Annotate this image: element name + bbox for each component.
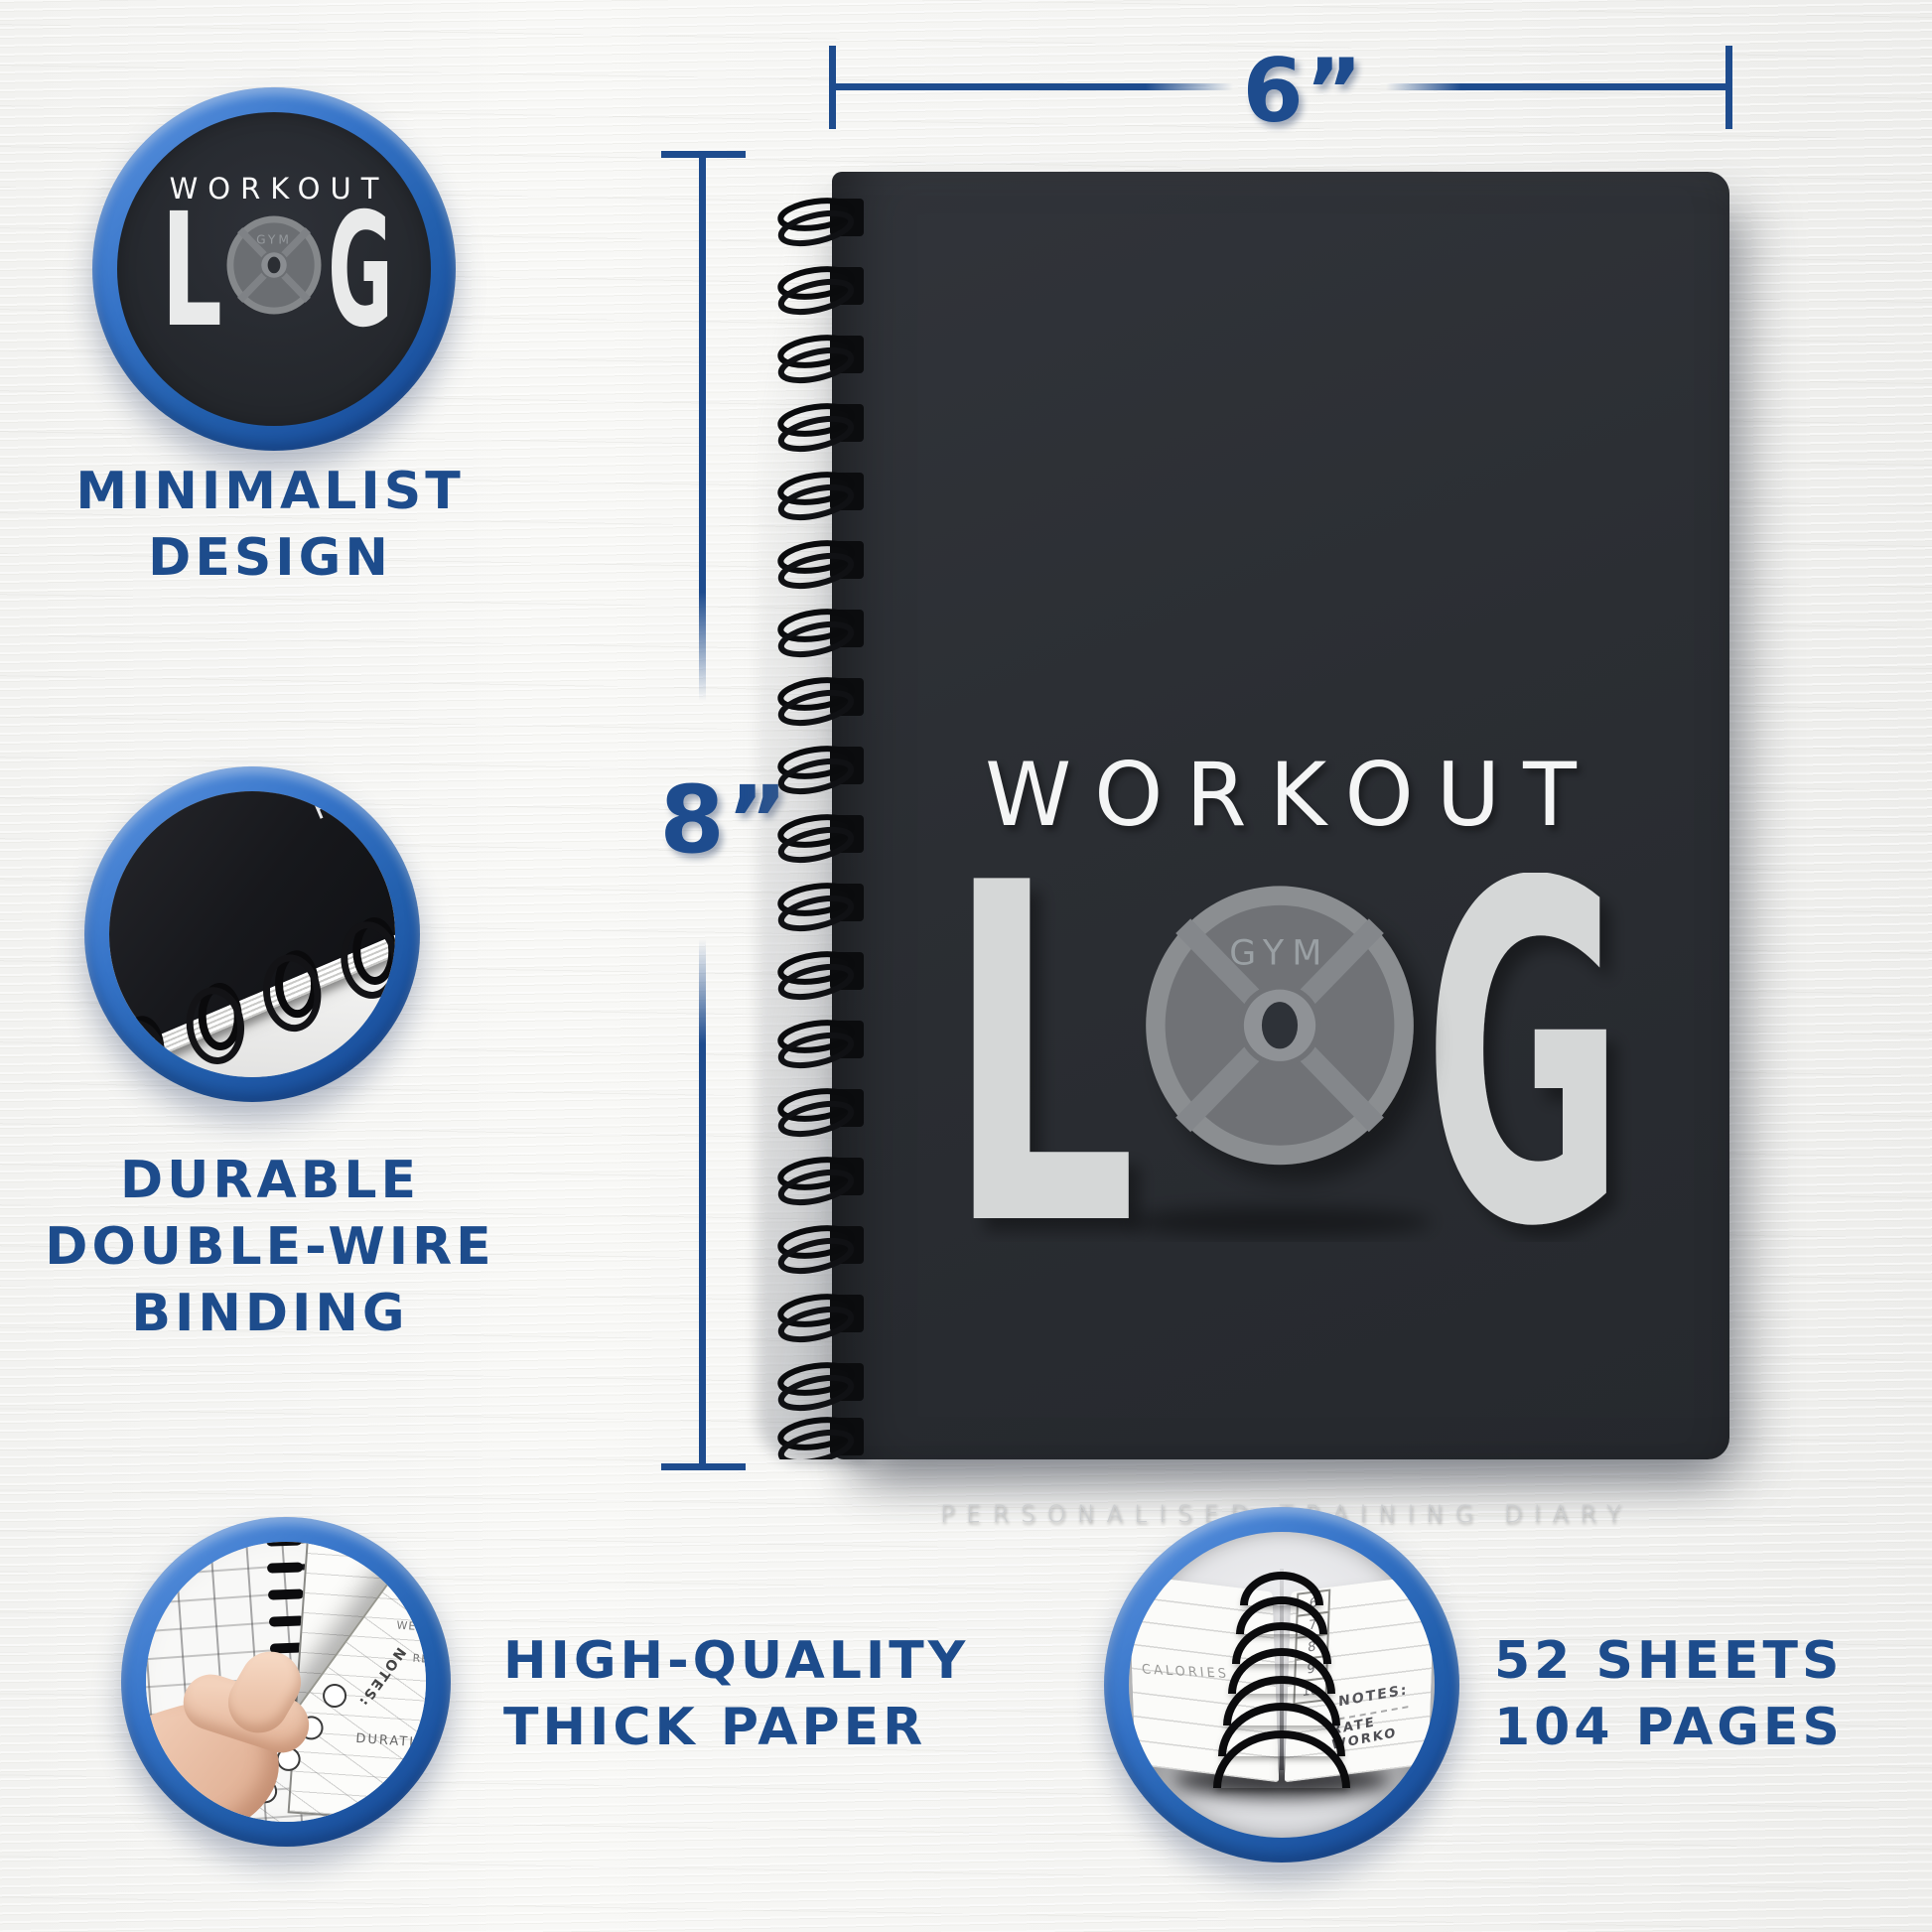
calories-label: CALORIES — [1141, 1663, 1229, 1683]
caption-line: 104 PAGES — [1494, 1695, 1911, 1761]
feature-caption-minimalist: MINIMALIST DESIGN — [0, 459, 540, 592]
dimension-line — [836, 83, 1233, 90]
dimension-endcap — [1725, 46, 1732, 129]
caption-line: DOUBLE-WIRE — [0, 1214, 540, 1281]
caption-line: DURABLE — [0, 1148, 540, 1214]
badge-minimalist-logo: WORKOUT L G GYM — [92, 87, 456, 451]
logo-badge-face: WORKOUT L G GYM — [117, 112, 431, 426]
wire-loop-icon — [352, 917, 395, 986]
badge-paper-photo: WEIGHT REPS DURATION NOTES: — [121, 1517, 451, 1847]
caption-line: 52 SHEETS — [1494, 1628, 1911, 1695]
badge-sheets-photo: CALORIES 6 7 8 9 10 NOTES: RATE WORKO — [1104, 1507, 1459, 1863]
wire-loop-icon — [198, 984, 242, 1052]
sheets-photo: CALORIES 6 7 8 9 10 NOTES: RATE WORKO — [1129, 1532, 1435, 1838]
wire-loop-icon — [275, 950, 320, 1019]
badge-binding-photo: PER — [84, 766, 420, 1102]
spiral-binding — [774, 177, 894, 1459]
cover-log-artwork: L G GYM — [832, 873, 1729, 1242]
badge-logo-log-artwork: L G GYM — [117, 207, 431, 333]
badge-weight-plate-icon: GYM — [226, 215, 321, 314]
dimension-endcap — [661, 1463, 746, 1470]
dimension-line — [699, 157, 706, 701]
product-infographic: 6” 8” WORKOUT L G — [0, 0, 1932, 1932]
caption-line: MINIMALIST — [0, 459, 540, 525]
binding-photo: PER — [109, 791, 395, 1077]
hand — [146, 1676, 303, 1822]
badge-logo-title: WORKOUT — [117, 172, 431, 206]
weight-plate-icon: GYM — [1146, 886, 1414, 1165]
binding-cover-text: PER — [308, 791, 395, 828]
dimension-line — [699, 939, 706, 1463]
feature-caption-paper: HIGH-QUALITY THICK PAPER — [503, 1628, 1119, 1761]
badge-log-letter-g: G — [328, 207, 393, 333]
width-dimension-label: 6” — [1229, 40, 1378, 142]
notes-label: NOTES: — [354, 1644, 408, 1710]
cover-log-letter-l: L — [946, 873, 1137, 1242]
wire-loop-icon — [120, 1017, 165, 1077]
caption-line: HIGH-QUALITY — [503, 1628, 1119, 1695]
caption-line: DESIGN — [0, 525, 540, 592]
paper-photo: WEIGHT REPS DURATION NOTES: — [146, 1542, 426, 1822]
plate-ground-shadow — [1130, 1207, 1432, 1237]
cover-title: WORKOUT — [832, 744, 1729, 846]
caption-line: BINDING — [0, 1281, 540, 1347]
badge-log-artwork: L G GYM — [125, 207, 423, 333]
notebook-cover: WORKOUT L G — [832, 172, 1729, 1459]
badge-plate-gym-label: GYM — [256, 232, 292, 246]
dimension-endcap — [829, 46, 836, 129]
plate-gym-label: GYM — [1229, 934, 1329, 974]
feature-caption-binding: DURABLE DOUBLE-WIRE BINDING — [0, 1148, 540, 1347]
caption-line: THICK PAPER — [503, 1695, 1119, 1761]
dimension-line — [1386, 83, 1725, 90]
cover-log-letter-g: G — [1424, 873, 1624, 1242]
feature-caption-sheets: 52 SHEETS 104 PAGES — [1494, 1628, 1911, 1761]
badge-log-letter-l: L — [161, 207, 222, 333]
smiley-icon — [318, 1679, 351, 1713]
